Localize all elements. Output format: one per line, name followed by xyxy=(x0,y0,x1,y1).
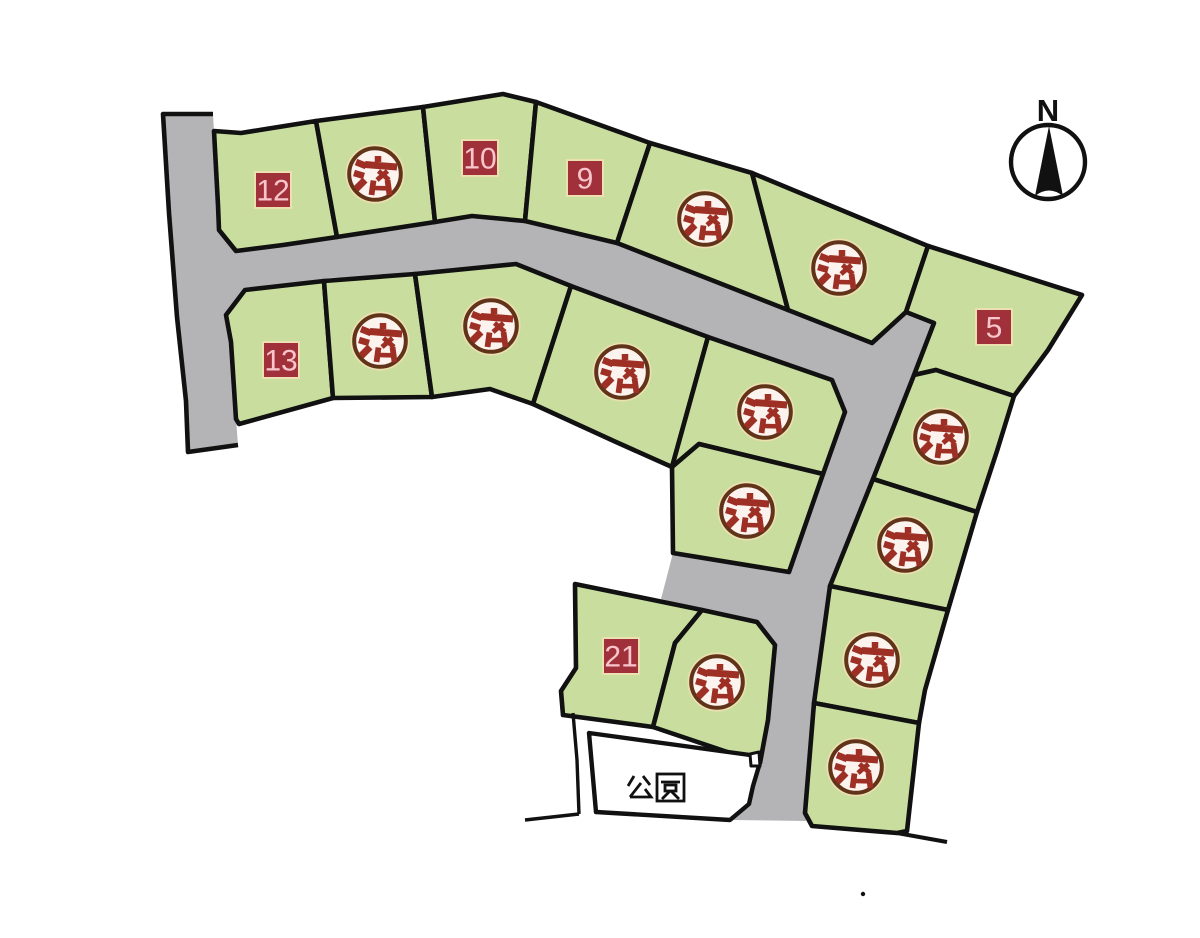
svg-text:9: 9 xyxy=(577,163,594,196)
svg-text:13: 13 xyxy=(264,345,297,378)
svg-text:10: 10 xyxy=(463,143,496,176)
svg-text:N: N xyxy=(1037,93,1059,128)
svg-text:12: 12 xyxy=(256,175,289,208)
svg-text:21: 21 xyxy=(604,641,637,674)
svg-text:5: 5 xyxy=(986,312,1003,345)
